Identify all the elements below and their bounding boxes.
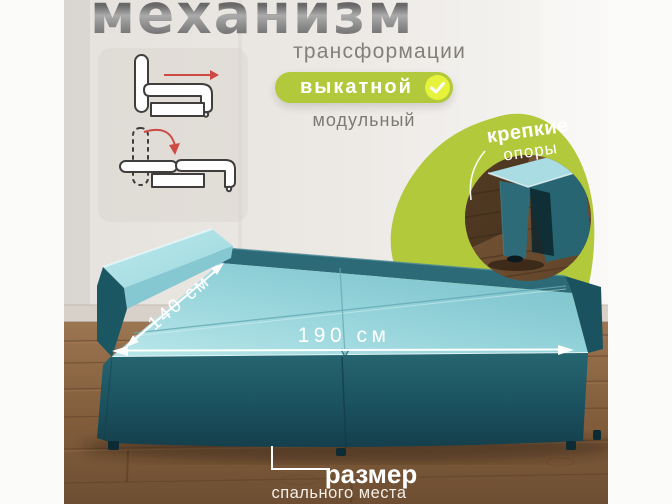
product-banner: 140 см 190 см <box>0 0 672 504</box>
dimension-length-label: 190 см <box>298 324 391 347</box>
page-title: механизм <box>90 0 414 42</box>
modular-badge: модульный <box>275 110 453 131</box>
right-margin <box>608 0 672 504</box>
sofa-pullout-arrow-icon <box>135 55 219 117</box>
mechanism-badge-label: выкатной <box>300 72 413 103</box>
page-subtitle: трансформации <box>266 40 466 64</box>
sofa-foot <box>507 256 523 263</box>
mechanism-badge: выкатной <box>275 72 453 103</box>
sofa-backrest-fold-icon <box>120 128 235 191</box>
caption-subtitle: спального места <box>271 484 406 502</box>
checkmark-icon <box>425 75 450 100</box>
mechanism-diagram-card <box>98 48 248 222</box>
left-margin <box>0 0 64 504</box>
